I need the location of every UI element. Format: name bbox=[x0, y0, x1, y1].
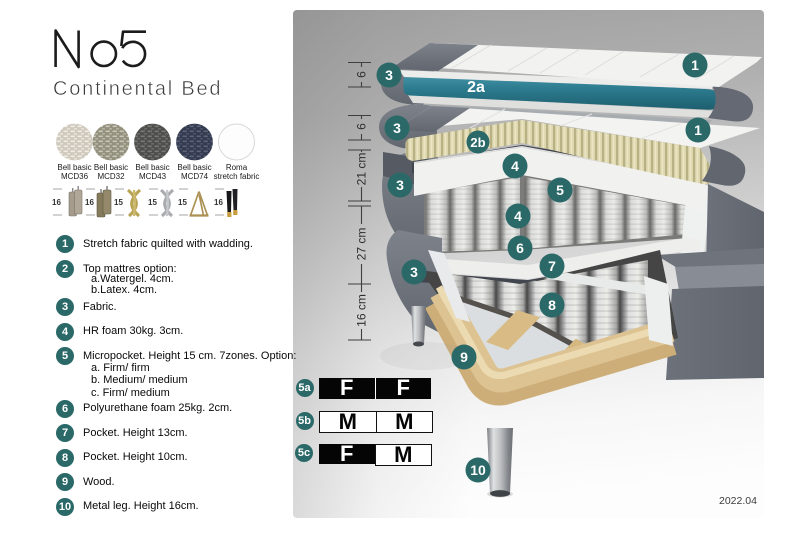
svg-text:5: 5 bbox=[556, 182, 564, 198]
svg-text:1: 1 bbox=[691, 57, 699, 73]
svg-text:3: 3 bbox=[393, 120, 401, 136]
svg-text:2a: 2a bbox=[467, 79, 485, 96]
svg-text:6: 6 bbox=[355, 123, 369, 130]
svg-text:3: 3 bbox=[396, 177, 404, 193]
svg-text:6: 6 bbox=[516, 240, 524, 256]
svg-text:3: 3 bbox=[385, 67, 393, 83]
svg-text:4: 4 bbox=[514, 208, 522, 224]
svg-text:4: 4 bbox=[511, 158, 519, 174]
svg-text:7: 7 bbox=[548, 258, 556, 274]
svg-text:16 cm: 16 cm bbox=[355, 294, 369, 327]
svg-text:8: 8 bbox=[548, 297, 556, 313]
svg-text:3: 3 bbox=[410, 264, 418, 280]
svg-text:10: 10 bbox=[470, 462, 486, 478]
svg-text:9: 9 bbox=[460, 349, 468, 365]
svg-text:27 cm: 27 cm bbox=[355, 228, 369, 261]
svg-text:6: 6 bbox=[355, 71, 369, 78]
svg-text:2b: 2b bbox=[470, 135, 485, 150]
svg-text:1: 1 bbox=[694, 122, 702, 138]
svg-text:21 cm: 21 cm bbox=[355, 153, 369, 186]
